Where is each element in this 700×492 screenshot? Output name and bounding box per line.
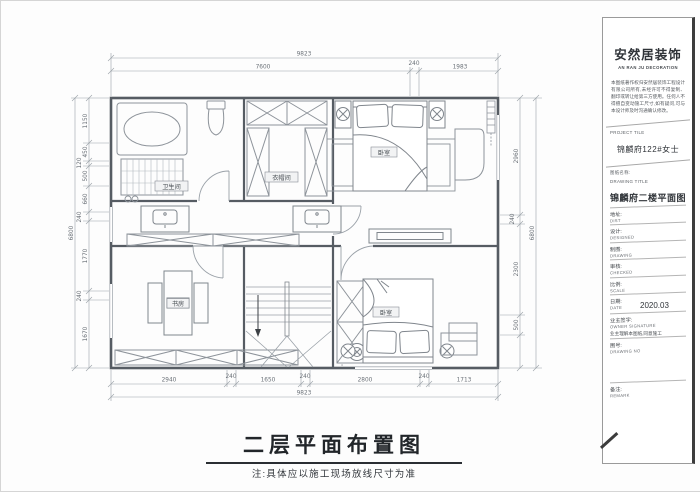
chaise bbox=[455, 129, 484, 180]
dim-left-1: 450 bbox=[83, 146, 89, 157]
blueprint-sheet: 卫生间 衣帽间 卧室 书房 卧室 bbox=[0, 0, 700, 492]
divider bbox=[606, 119, 690, 127]
toilet-icon bbox=[207, 101, 225, 135]
vanity-right bbox=[293, 206, 341, 232]
tv-bench bbox=[369, 229, 451, 243]
drawing-title-label-en: DRAWING TITLE bbox=[610, 179, 686, 184]
bed-top bbox=[353, 101, 427, 191]
bathtub bbox=[117, 103, 187, 155]
dim-top-0: 7600 bbox=[256, 65, 271, 71]
wardrobe-left-column bbox=[247, 128, 269, 196]
dim-bottom-1: 240 bbox=[225, 374, 236, 380]
room-label-bathroom: 卫生间 bbox=[162, 183, 181, 191]
dim-bottom-2: 1650 bbox=[261, 378, 276, 384]
vanity-left bbox=[141, 206, 189, 232]
dim-left-5: 240 bbox=[77, 211, 83, 222]
room-label-study: 书房 bbox=[172, 300, 184, 308]
dim-top-2: 1983 bbox=[453, 65, 468, 71]
radiator-strip bbox=[487, 101, 495, 147]
copyright-note: 本图纸著作权归安然居装饰工程设计有限公司所有,未经许可不得复制、翻印或转让给第三… bbox=[611, 79, 685, 115]
dim-left-8: 1670 bbox=[83, 326, 89, 341]
dim-bottom-4: 2800 bbox=[358, 378, 373, 384]
wardrobe-top bbox=[247, 101, 327, 125]
dim-top-total: 9823 bbox=[297, 52, 312, 58]
field-owner-signature: 业主签字: OWNER SIGNATURE bbox=[610, 310, 686, 330]
project-name: 锦麟府122#女士 bbox=[610, 144, 686, 155]
staircase bbox=[246, 282, 331, 367]
floor-plan: 卫生间 衣帽间 卧室 书房 卧室 bbox=[1, 1, 581, 431]
field-designed: 设计: DESIGNED bbox=[610, 222, 686, 242]
divider bbox=[606, 159, 690, 167]
dim-top-1: 240 bbox=[408, 61, 419, 67]
dim-right-1: 240 bbox=[510, 213, 516, 224]
dim-left-0: 1150 bbox=[83, 113, 89, 128]
dim-left-3: 500 bbox=[83, 170, 89, 181]
room-label-bedroom-top: 卧室 bbox=[378, 149, 390, 157]
dim-right-0: 2960 bbox=[514, 148, 520, 163]
title-block-corner-cut bbox=[600, 432, 618, 449]
dim-left-2: 120 bbox=[77, 157, 83, 168]
drawing-title-label-cn: 图纸名称: bbox=[610, 170, 686, 176]
caption-title: 二层平面布置图 bbox=[206, 429, 462, 459]
field-remark: 备注: REMARK bbox=[610, 379, 686, 399]
nightstand-left bbox=[335, 101, 351, 128]
nightstand-br bbox=[440, 344, 454, 358]
nightstand-bl bbox=[341, 344, 355, 365]
field-drawing-no: 图号: DRAWING NO bbox=[610, 336, 686, 356]
dimension-lines bbox=[71, 53, 542, 401]
company-name: 安然居装饰 bbox=[610, 44, 686, 63]
caption-note: 注:具体应以施工现场放线尺寸为准 bbox=[206, 466, 462, 480]
dim-left-4: 660 bbox=[83, 193, 89, 204]
bed-bottom bbox=[363, 279, 433, 363]
dim-bottom-total: 9823 bbox=[297, 391, 312, 397]
dim-right-total: 6800 bbox=[530, 225, 536, 240]
dim-right-2: 2300 bbox=[514, 261, 520, 276]
dim-bottom-3: 240 bbox=[299, 374, 310, 380]
title-block: 安然居装饰 AN RAN JU DECORATION 本图纸著作权归安然居装饰工… bbox=[602, 17, 695, 464]
dim-bottom-6: 1713 bbox=[457, 378, 472, 384]
dim-left-total: 6800 bbox=[69, 225, 75, 240]
dim-right-3: 500 bbox=[514, 319, 520, 330]
company-name-en: AN RAN JU DECORATION bbox=[610, 65, 686, 70]
dim-left-7: 240 bbox=[77, 290, 83, 301]
dim-bottom-0: 2940 bbox=[162, 378, 177, 384]
room-label-bedroom-bottom: 卧室 bbox=[380, 309, 392, 317]
door-swings bbox=[193, 171, 373, 280]
field-checked: 审核: CHECKED bbox=[610, 257, 686, 277]
caption-rule bbox=[206, 462, 462, 464]
project-label: PROJECT TILE bbox=[610, 130, 686, 135]
dim-bottom-5: 240 bbox=[418, 374, 429, 380]
drawing-caption: 二层平面布置图 注:具体应以施工现场放线尺寸为准 bbox=[206, 429, 462, 480]
field-date: 日期: DATE bbox=[610, 292, 686, 312]
wardrobe-right-column bbox=[305, 128, 327, 196]
dim-left-6: 1770 bbox=[83, 248, 89, 263]
drawing-title: 锦麟府二楼平面图 bbox=[610, 191, 686, 204]
room-label-cloakroom: 衣帽间 bbox=[272, 174, 291, 182]
corridor-cabinet bbox=[127, 234, 299, 246]
nightstand-right bbox=[429, 101, 445, 128]
